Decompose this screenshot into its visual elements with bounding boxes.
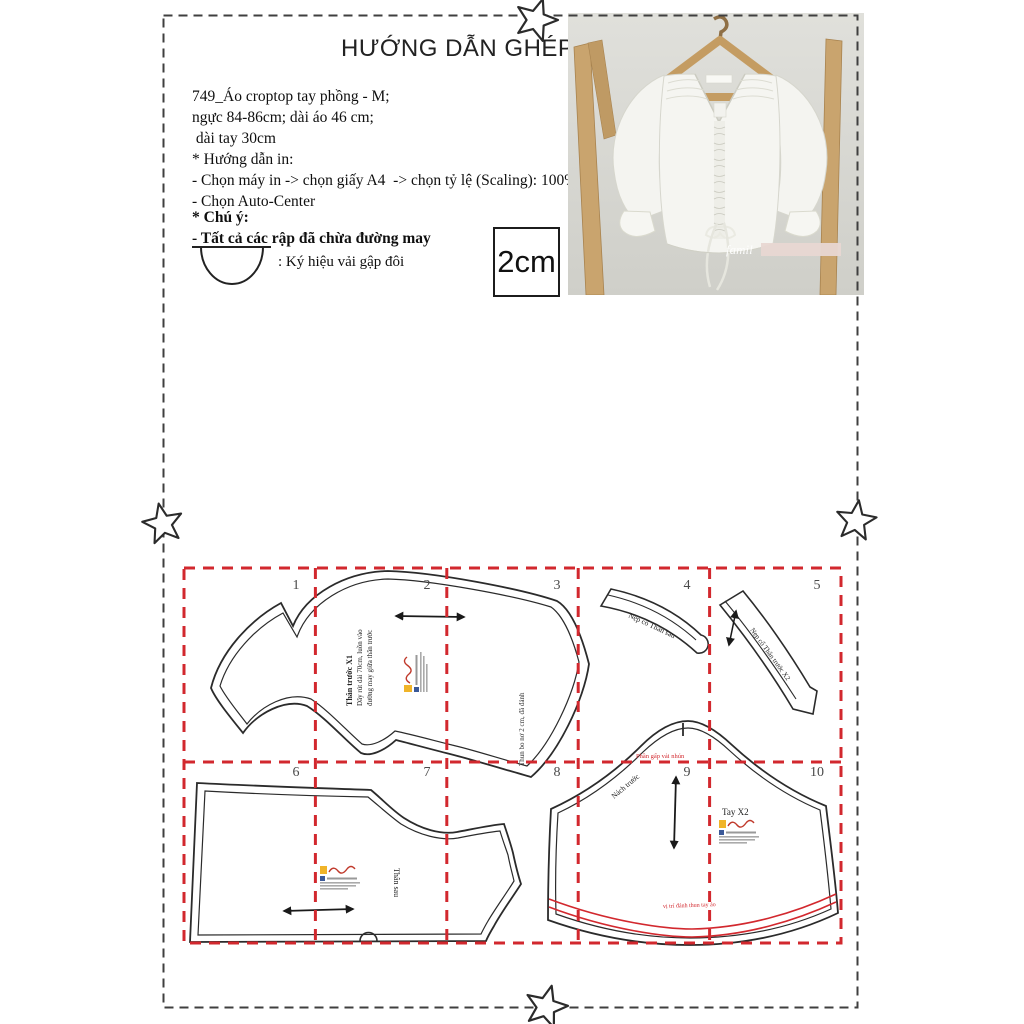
back-bodice-label: Thân sau	[392, 868, 401, 897]
photo-watermark: famil	[726, 242, 753, 257]
cell-number: 6	[293, 765, 300, 780]
sleeve-cap-note: Nách trước	[610, 772, 642, 801]
fold-symbol-label: : Ký hiệu vải gập đôi	[278, 254, 404, 271]
grainline-arrow	[396, 616, 464, 617]
logo-watermark-front	[404, 652, 428, 692]
front-bodice-note-1: Dây rút dài 70cm, luồn vào	[356, 629, 364, 706]
elastic-placement-line	[549, 902, 836, 937]
back-neck-facing-piece	[601, 589, 708, 653]
garment-info: 749_Áo croptop tay phồng - M; ngực 84-86…	[192, 86, 577, 212]
fold-symbol-icon	[192, 247, 271, 284]
sleeve-elastic-note: vị trí đánh thun tay áo	[663, 902, 716, 910]
star-icon	[834, 498, 879, 541]
cell-number: 10	[810, 765, 824, 780]
assembly-grid	[184, 568, 841, 943]
logo-watermark-back	[320, 866, 360, 890]
info-line-measure: ngực 84-86cm; dài áo 46 cm;	[192, 107, 577, 128]
facing-grainline-arrow	[729, 611, 736, 645]
scale-reference-value: 2cm	[497, 244, 556, 280]
info-line-sleeve: dài tay 30cm	[192, 128, 577, 149]
info-line-print-step1: - Chọn máy in -> chọn giấy A4 -> chọn tỷ…	[192, 170, 577, 191]
attention-heading: * Chú ý:	[192, 207, 431, 228]
front-bodice-piece	[211, 571, 589, 777]
cell-number: 2	[424, 578, 431, 593]
cell-number: 8	[554, 765, 561, 780]
front-bodice-note-2: đường may giữa thân trước	[366, 630, 374, 706]
pattern-instruction-sheet: HƯỚNG DẪN GHÉP RẬP 749_Áo croptop tay ph…	[0, 0, 1024, 1024]
cell-number: 7	[424, 765, 431, 780]
logo-watermark-sleeve	[719, 820, 759, 844]
sleeve-name: Tay X2	[722, 807, 749, 817]
front-bodice-labels: Thân trước X1 Dây rút dài 70cm, luồn vào…	[345, 629, 526, 766]
fold-notch-icon	[360, 933, 377, 942]
front-bodice-name: Thân trước X1	[345, 655, 354, 706]
cell-number: 4	[684, 578, 691, 593]
cell-number: 3	[554, 578, 561, 593]
front-neck-facing-piece	[720, 591, 817, 714]
front-bodice-elastic-note: Thun bo nơ 2 cm, đã đánh	[518, 692, 526, 766]
cell-number: 5	[814, 578, 821, 593]
product-photo: famil	[568, 13, 864, 295]
cell-number: 9	[684, 765, 691, 780]
grid-cell-numbers: 1 2 3 4 5 6 7 8 9 10	[293, 578, 825, 780]
star-icon	[521, 980, 572, 1024]
attention-note: * Chú ý: - Tất cả các rập đã chừa đường …	[192, 207, 431, 249]
info-line-model: 749_Áo croptop tay phồng - M;	[192, 86, 577, 107]
scale-reference-box: 2cm	[493, 227, 560, 297]
grainline-arrow	[674, 777, 676, 848]
grainline-arrow	[284, 909, 353, 911]
sleeve-gather-note: Phần gấp vải nhún	[636, 753, 685, 760]
attention-body: - Tất cả các rập đã chừa đường may	[192, 228, 431, 249]
back-bodice-piece	[190, 783, 521, 942]
back-neck-facing-label: Nẹp cổ Thân sau	[627, 611, 677, 641]
front-neck-facing-label: Nẹp cổ Thân trước X2	[748, 626, 792, 682]
info-line-print-heading: * Hướng dẫn in:	[192, 149, 577, 170]
sleeve-labels: Tay X2 Nách trước Phần gấp vải nhún vị t…	[610, 753, 749, 910]
elastic-placement-line	[549, 894, 836, 929]
product-photo-illustration: famil	[568, 13, 864, 295]
star-icon	[139, 499, 186, 544]
cell-number: 1	[293, 578, 300, 593]
watermark-bar	[761, 243, 841, 256]
sleeve-piece	[548, 721, 838, 945]
